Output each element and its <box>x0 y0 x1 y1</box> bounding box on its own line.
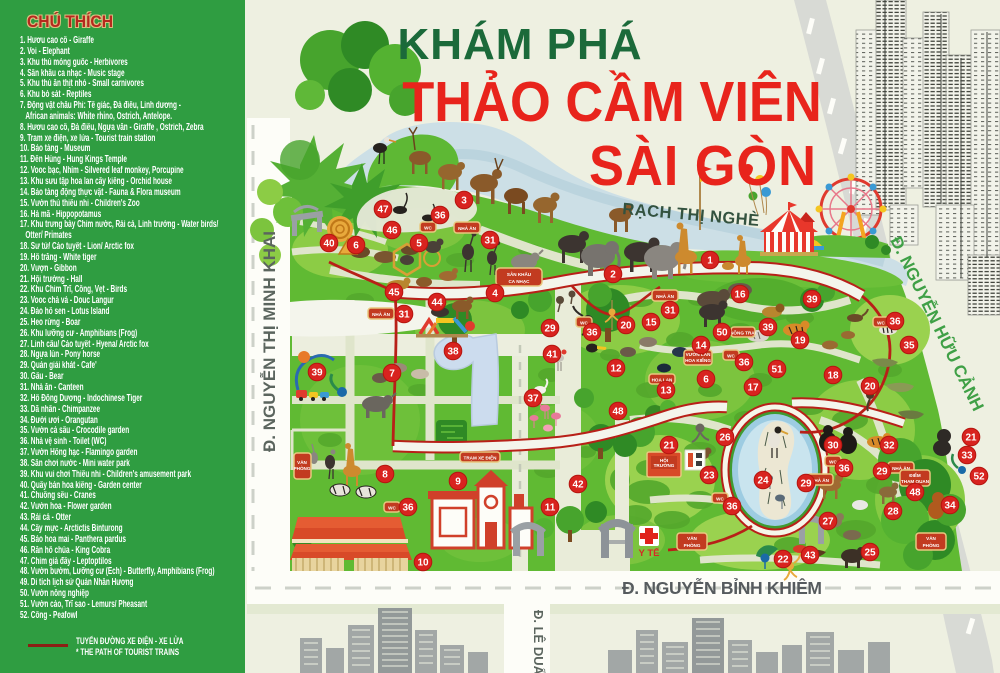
svg-text:21: 21 <box>965 433 977 444</box>
svg-text:39: 39 <box>311 368 323 379</box>
svg-text:15: 15 <box>645 318 657 329</box>
svg-text:PHÒNG: PHÒNG <box>294 464 311 471</box>
svg-text:25: 25 <box>864 548 876 559</box>
svg-text:34: 34 <box>944 501 956 512</box>
svg-text:5: 5 <box>416 239 422 250</box>
svg-text:WC: WC <box>716 497 724 502</box>
svg-text:11: 11 <box>545 503 556 514</box>
svg-text:TRẠM XE ĐIỆN: TRẠM XE ĐIỆN <box>464 454 498 461</box>
svg-text:41: 41 <box>546 350 558 361</box>
svg-text:29: 29 <box>876 467 888 478</box>
svg-text:Đ. NGUYỄN THỊ MINH KHAI: Đ. NGUYỄN THỊ MINH KHAI <box>260 231 279 452</box>
svg-text:NHÀ ĂN: NHÀ ĂN <box>372 311 391 317</box>
svg-text:27: 27 <box>822 517 834 528</box>
svg-text:NÔNG TRẠI: NÔNG TRẠI <box>730 329 756 336</box>
svg-text:WC: WC <box>388 506 396 511</box>
svg-text:40: 40 <box>323 239 335 250</box>
svg-text:26: 26 <box>719 433 731 444</box>
svg-text:29: 29 <box>800 479 812 490</box>
svg-text:7: 7 <box>389 369 395 380</box>
svg-text:46: 46 <box>386 226 398 237</box>
svg-text:38: 38 <box>447 347 459 358</box>
svg-text:36: 36 <box>586 328 598 339</box>
svg-text:47: 47 <box>377 205 389 216</box>
svg-text:37: 37 <box>527 394 539 405</box>
svg-text:50: 50 <box>716 328 728 339</box>
svg-text:12: 12 <box>610 364 622 375</box>
svg-text:48: 48 <box>909 488 921 499</box>
svg-text:36: 36 <box>838 464 850 475</box>
svg-text:39: 39 <box>806 295 818 306</box>
svg-text:HỘI: HỘI <box>660 456 668 463</box>
svg-text:WC: WC <box>877 321 885 326</box>
svg-text:17: 17 <box>747 383 759 394</box>
svg-text:32: 32 <box>883 441 895 452</box>
svg-text:14: 14 <box>695 341 707 352</box>
svg-text:39: 39 <box>762 323 774 334</box>
svg-text:2: 2 <box>610 270 616 281</box>
svg-text:30: 30 <box>827 441 839 452</box>
svg-text:36: 36 <box>402 503 414 514</box>
svg-text:9: 9 <box>455 477 461 488</box>
svg-text:21: 21 <box>663 441 675 452</box>
svg-text:20: 20 <box>864 382 876 393</box>
svg-text:35: 35 <box>903 341 915 352</box>
svg-text:33: 33 <box>961 451 973 462</box>
svg-text:36: 36 <box>738 358 750 369</box>
svg-text:VĂN: VĂN <box>926 535 936 541</box>
svg-text:16: 16 <box>734 290 746 301</box>
svg-text:19: 19 <box>794 336 806 347</box>
svg-text:TRƯỜNG: TRƯỜNG <box>654 461 675 468</box>
svg-text:29: 29 <box>544 324 556 335</box>
svg-text:PHÒNG: PHÒNG <box>923 541 940 548</box>
svg-text:PHÒNG: PHÒNG <box>684 541 701 548</box>
svg-text:51: 51 <box>771 365 783 376</box>
svg-text:23: 23 <box>703 471 715 482</box>
svg-text:48: 48 <box>612 407 624 418</box>
svg-text:1: 1 <box>707 256 713 267</box>
svg-text:44: 44 <box>431 298 443 309</box>
svg-text:52: 52 <box>973 472 985 483</box>
svg-text:6: 6 <box>353 241 359 252</box>
svg-text:28: 28 <box>887 507 899 518</box>
svg-text:Đ. NGUYỄN BỈNH KHIÊM: Đ. NGUYỄN BỈNH KHIÊM <box>622 577 822 598</box>
svg-text:Đ. LÊ DUẨN: Đ. LÊ DUẨN <box>531 610 546 673</box>
svg-text:36: 36 <box>726 502 738 513</box>
svg-text:Y TẾ: Y TẾ <box>639 548 660 559</box>
svg-text:SÂN KHẤU: SÂN KHẤU <box>507 271 532 277</box>
svg-text:13: 13 <box>660 386 672 397</box>
svg-text:WC: WC <box>727 354 735 359</box>
svg-text:4: 4 <box>492 289 498 300</box>
svg-text:22: 22 <box>777 555 789 566</box>
svg-text:NHÀ ĂN: NHÀ ĂN <box>458 225 477 231</box>
svg-text:18: 18 <box>827 371 839 382</box>
svg-text:6: 6 <box>703 375 709 386</box>
svg-text:45: 45 <box>388 288 400 299</box>
svg-text:31: 31 <box>398 310 410 321</box>
svg-text:20: 20 <box>620 321 632 332</box>
svg-text:VĂN: VĂN <box>687 535 697 541</box>
svg-text:WC: WC <box>424 226 432 231</box>
svg-text:31: 31 <box>664 306 676 317</box>
svg-text:36: 36 <box>889 317 901 328</box>
svg-text:31: 31 <box>484 236 496 247</box>
svg-text:VĂN: VĂN <box>297 459 307 465</box>
svg-text:10: 10 <box>417 558 429 569</box>
svg-text:HOA KIỂNG: HOA KIỂNG <box>685 357 711 363</box>
svg-text:43: 43 <box>804 551 816 562</box>
svg-text:42: 42 <box>572 480 584 491</box>
svg-text:CA NHẠC: CA NHẠC <box>508 279 530 284</box>
svg-text:ĐIỂM: ĐIỂM <box>909 472 921 478</box>
svg-text:24: 24 <box>757 476 769 487</box>
svg-text:3: 3 <box>461 196 467 207</box>
svg-text:36: 36 <box>434 211 446 222</box>
svg-text:8: 8 <box>382 470 388 481</box>
svg-text:NHÀ ĂN: NHÀ ĂN <box>656 293 675 299</box>
